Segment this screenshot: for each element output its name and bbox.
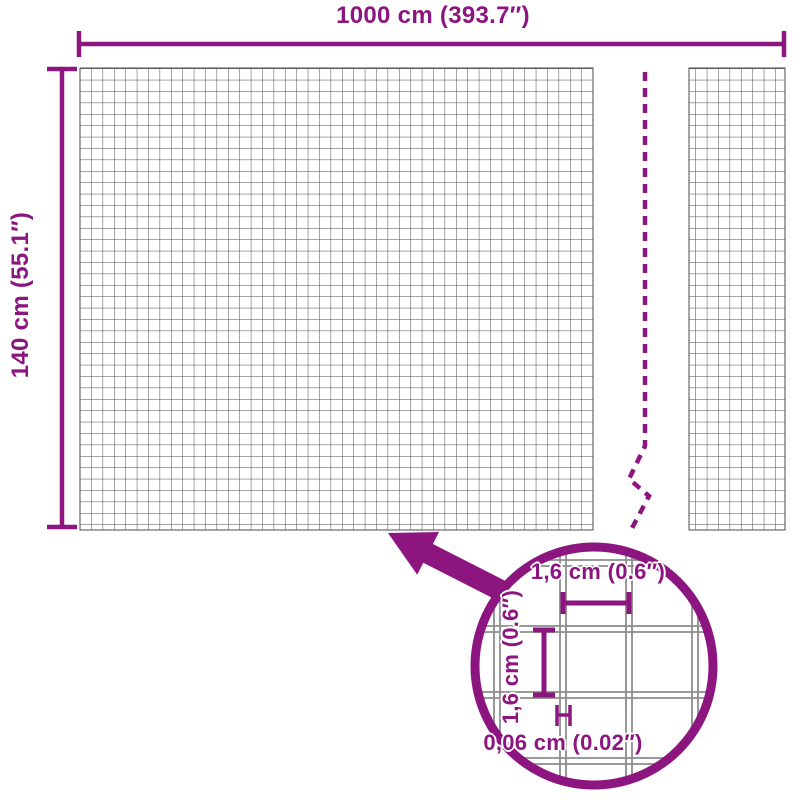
- diagram-canvas: [0, 0, 800, 800]
- mesh-panel-left: [80, 68, 593, 530]
- width-dimension-line: [79, 31, 784, 57]
- height-label: 140 cm (55.1″): [7, 212, 35, 378]
- cell-width-label: 1,6 cm (0.6″): [531, 559, 665, 585]
- cell-height-label: 1,6 cm (0.6″): [498, 590, 524, 724]
- product-dimension-diagram: 1000 cm (393.7″) 140 cm (55.1″) 1,6 cm (…: [0, 0, 800, 800]
- mesh-panel-right: [689, 68, 785, 530]
- height-dimension-line: [47, 69, 77, 527]
- zoom-arrow-icon: [388, 532, 505, 599]
- width-label: 1000 cm (393.7″): [336, 2, 530, 30]
- break-line: [629, 72, 649, 530]
- wire-thickness-label: 0,06 cm (0.02″): [483, 730, 642, 756]
